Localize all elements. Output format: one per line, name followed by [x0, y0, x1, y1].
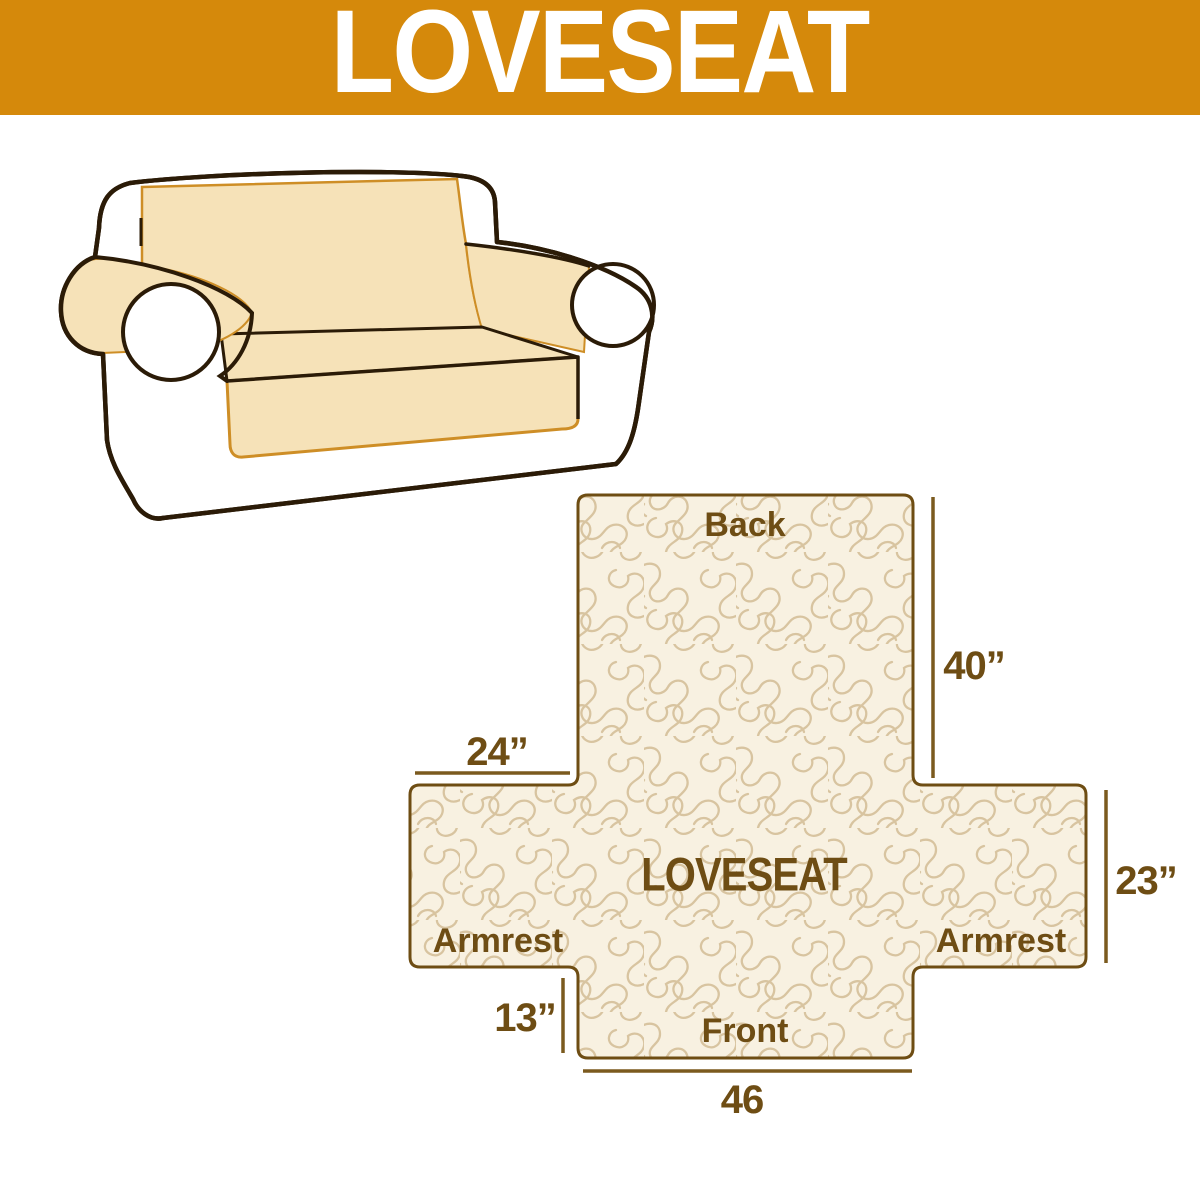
cover-cross-quilt-pattern [410, 495, 1086, 1058]
page: LOVESEAT [0, 0, 1200, 1200]
armrest-left-label: Armrest [433, 924, 563, 958]
dim-front-skirt-13: 13” [494, 998, 556, 1038]
front-section-label: Front [702, 1014, 789, 1048]
armrest-right-label: Armrest [936, 924, 1066, 958]
right-armrest-front [572, 264, 654, 346]
scene-graphics [0, 0, 1200, 1200]
back-section-label: Back [704, 508, 785, 542]
dim-side-height-23: 23” [1115, 861, 1177, 901]
dim-armrest-width-24: 24” [466, 732, 528, 772]
cover-layout-diagram [410, 495, 1106, 1071]
left-armrest-front [123, 284, 219, 380]
dim-back-height-40: 40” [943, 646, 1005, 686]
center-loveseat-label: LOVESEAT [641, 851, 847, 898]
loveseat-sofa-sketch [61, 172, 654, 519]
dim-front-width-46: 46 [721, 1080, 764, 1120]
